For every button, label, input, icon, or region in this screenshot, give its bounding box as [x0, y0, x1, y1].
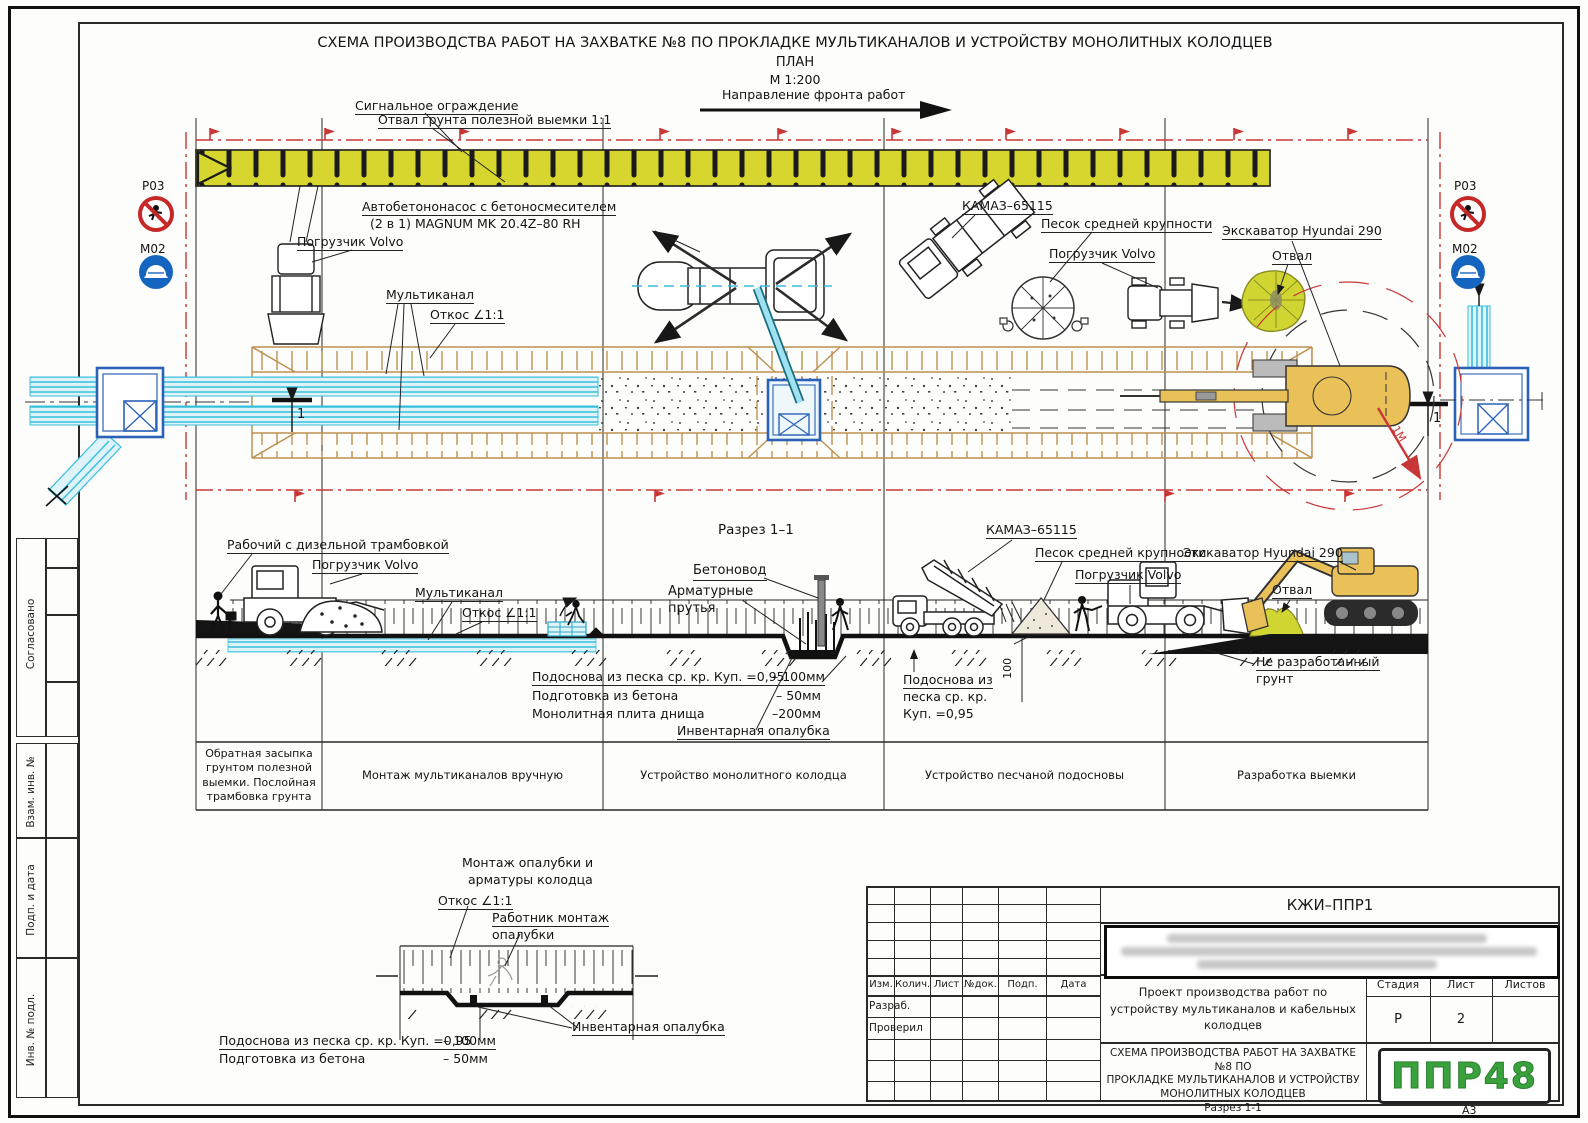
col-podp: Подп. [999, 979, 1046, 990]
detail-note1-value: – 100мм [443, 1034, 496, 1050]
loader-volvo2-plan [1128, 278, 1250, 328]
label-excavator-plan: Экскаватор Hyundai 290 [1222, 224, 1382, 240]
label-pump-2: (2 в 1) MAGNUM MK 20.4Z–80 RH [370, 217, 581, 231]
sidebar-podp-empty [46, 838, 78, 958]
dim-100-text: 100 [1002, 658, 1015, 679]
sidebar-empty-4 [46, 682, 78, 737]
scheme-line-1: СХЕМА ПРОИЗВОДСТВА РАБОТ НА ЗАХВАТКЕ №8 … [1103, 1047, 1363, 1074]
label-unexcavated-2: грунт [1256, 672, 1293, 686]
formwork-box-section [548, 622, 586, 636]
ground-hatch [196, 650, 1428, 666]
note3-label: Монолитная плита днища [532, 707, 705, 721]
detail-worker-1: Работник монтаж [492, 911, 609, 927]
plan-view [25, 101, 1548, 810]
label-pump-1: Автобетононасос с бетоносмесителем [362, 200, 616, 216]
label-multichannel-plan: Мультиканал [386, 288, 474, 304]
spoil-pile-plan [1242, 271, 1305, 332]
note2-label: Подготовка из бетона [532, 689, 678, 703]
sign-p03-left-label: Р03 [142, 180, 165, 194]
label-subbase-3: Куп. =0,95 [903, 707, 974, 721]
detail-slope: Откос ∠1:1 [438, 894, 513, 910]
logo-text: ППР48 [1391, 1056, 1538, 1097]
row-razrab: Разраб. [869, 1000, 910, 1012]
sidebar-vzam: Взам. инв. № [25, 747, 37, 837]
direction-arrow [700, 101, 952, 119]
sign-p03-right-label: Р03 [1454, 180, 1477, 194]
note3-value: –200мм [772, 707, 821, 721]
sign-m02-right-label: М02 [1452, 243, 1478, 257]
format-label: А3 [1462, 1105, 1477, 1118]
label-subbase-2: песка ср. кр. [903, 690, 987, 704]
sidebar-inv-empty [46, 958, 78, 1098]
label-subbase-1: Подоснова из [903, 673, 993, 689]
kamaz-plan [894, 172, 1040, 304]
logo-box: ППР48 [1378, 1048, 1551, 1104]
sidebar-vzam-empty [46, 743, 78, 838]
sand-stock-plan [1000, 277, 1088, 339]
detail-note1-label: Подоснова из песка ср. кр. Куп. =0,95 [219, 1034, 472, 1050]
label-rebar-1: Арматурные [668, 585, 753, 600]
stage-value: Р [1366, 1012, 1430, 1027]
stage-3: Устройство монолитного колодца [603, 768, 884, 783]
label-sand-plan: Песок средней крупности [1041, 217, 1212, 233]
scheme-line-4: Разрез 1-1 [1103, 1102, 1363, 1116]
well-right [1440, 296, 1548, 440]
label-spoil-bank: Отвал грунта полезной выемки 1:1 [378, 113, 611, 129]
label-formwork-section: Инвентарная опалубка [677, 724, 830, 740]
redacted-project-box [1104, 925, 1560, 979]
detail-note2-value: – 50мм [443, 1052, 488, 1066]
stage-header: Стадия [1366, 978, 1430, 991]
stage-1: Обратная засыпка грунтом полезной выемки… [199, 747, 319, 804]
stage-5: Разработка выемки [1165, 768, 1428, 783]
sheet-value: 2 [1430, 1012, 1492, 1027]
stage-2: Монтаж мультиканалов вручную [322, 768, 603, 783]
col-list: Лист [931, 979, 962, 990]
label-loader-section: Погрузчик Volvo [312, 558, 418, 574]
label-unexcavated-1: Не разработанный [1256, 655, 1380, 671]
scale-label: М 1:200 [200, 73, 1390, 87]
well-left [97, 368, 163, 437]
label-rebar-2: прутья [668, 602, 716, 617]
col-ndok: №док. [963, 979, 998, 990]
label-loader2-section: Погрузчик Volvo [1075, 568, 1181, 584]
label-excavator-section: Экскаватор Hyundai 290 [1183, 546, 1343, 562]
scheme-name: СХЕМА ПРОИЗВОДСТВА РАБОТ НА ЗАХВАТКЕ №8 … [1103, 1047, 1363, 1115]
sidebar-empty-1 [46, 538, 78, 568]
loader-volvo-plan [268, 186, 324, 344]
sidebar-agreed: Согласовано [25, 584, 37, 684]
scheme-line-3: МОНОЛИТНЫХ КОЛОДЦЕВ [1103, 1088, 1363, 1102]
section-mark-left: 1 [297, 408, 305, 423]
label-loader2-plan: Погрузчик Volvo [1049, 247, 1155, 263]
label-sand-section: Песок средней крупности [1035, 546, 1206, 562]
label-slope-plan: Откос ∠1:1 [430, 308, 505, 324]
label-kamaz-section: КАМАЗ–65115 [986, 523, 1077, 539]
doc-code: КЖИ–ППР1 [1100, 896, 1560, 914]
label-worker-rammer: Рабочий с дизельной трамбовкой [227, 538, 449, 554]
detail-worker-2: опалубки [492, 928, 554, 942]
sidebar-empty-2 [46, 568, 78, 615]
dim-100 [1014, 636, 1030, 702]
sheet-header: Лист [1430, 978, 1492, 991]
sidebar-empty-3 [46, 615, 78, 682]
col-kolich: Колич. [895, 979, 930, 990]
note2-value: – 50мм [776, 689, 821, 703]
label-slope-section: Откос ∠1:1 [462, 606, 537, 622]
label-loader-plan: Погрузчик Volvo [297, 235, 403, 251]
detail-formwork: Инвентарная опалубка [572, 1020, 725, 1036]
sheets-header: Листов [1492, 978, 1558, 991]
col-izm: Изм. [868, 979, 894, 990]
spoil-berm [196, 150, 1270, 186]
sidebar-inv: Инв. № подл. [25, 985, 37, 1075]
plan-subtitle: ПЛАН [200, 56, 1390, 71]
note1-value: – 100мм [772, 670, 825, 686]
sidebar-podp: Подп. и дата [25, 855, 37, 945]
page-title: СХЕМА ПРОИЗВОДСТВА РАБОТ НА ЗАХВАТКЕ №8 … [200, 35, 1390, 52]
row-proveril: Проверил [869, 1022, 923, 1034]
scheme-line-2: ПРОКЛАДКЕ МУЛЬТИКАНАЛОВ И УСТРОЙСТВУ [1103, 1074, 1363, 1088]
detail-title-1: Монтаж опалубки и [462, 856, 593, 870]
direction-label: Направление фронта работ [722, 88, 905, 102]
drawing-sheet: СХЕМА ПРОИЗВОДСТВА РАБОТ НА ЗАХВАТКЕ №8 … [0, 0, 1588, 1123]
section-mark-right: 1 [1433, 412, 1441, 427]
label-kamaz-plan: КАМАЗ–65115 [962, 199, 1053, 215]
note1-label: Подоснова из песка ср. кр. Куп. =0,95 [532, 670, 785, 686]
label-spoil-section: Отвал [1272, 583, 1312, 599]
label-multichannel-section: Мультиканал [415, 586, 503, 602]
stage-4: Устройство песчаной подосновы [884, 768, 1165, 783]
label-concrete-pipe: Бетоновод [693, 564, 767, 581]
detail-note2-label: Подготовка из бетона [219, 1052, 365, 1066]
detail-title-2: арматуры колодца [468, 873, 593, 887]
sign-m02-left-label: М02 [140, 243, 166, 257]
col-data: Дата [1047, 979, 1100, 990]
project-name: Проект производства работ по устройству … [1104, 984, 1362, 1034]
label-spoil-plan: Отвал [1272, 249, 1312, 265]
section-title: Разрез 1–1 [718, 523, 794, 539]
